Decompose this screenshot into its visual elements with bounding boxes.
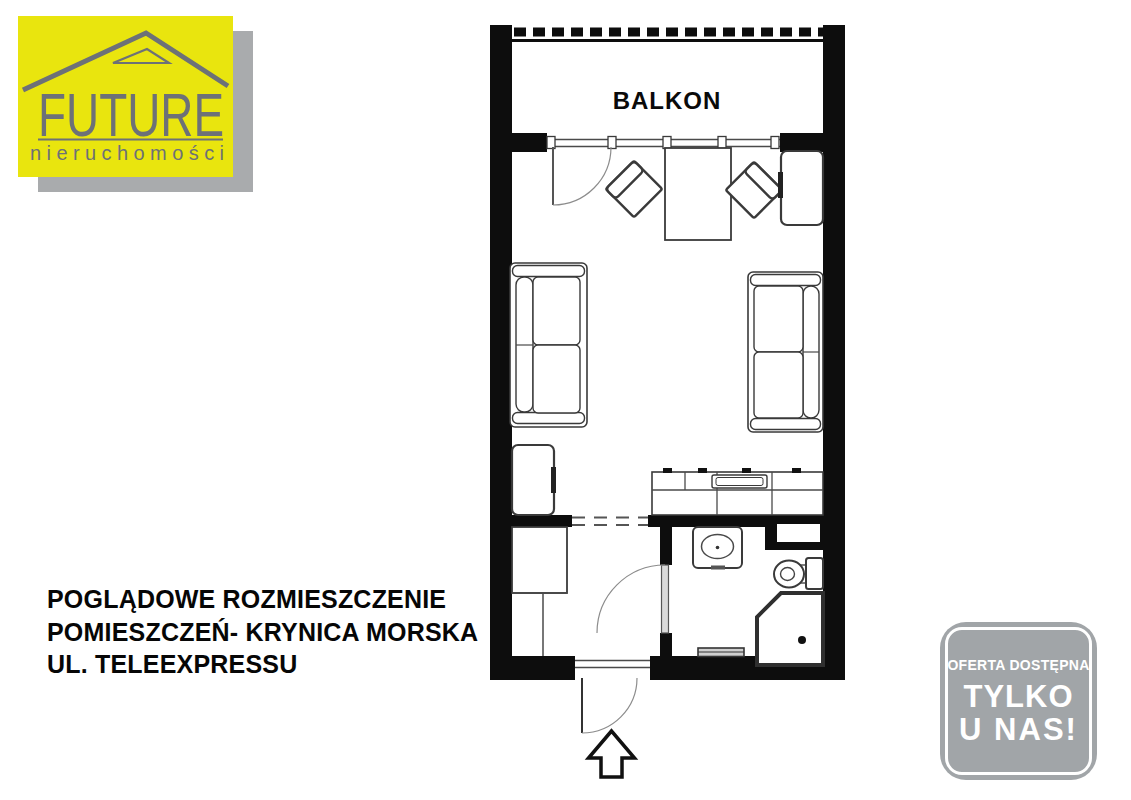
wardrobe [512, 527, 567, 656]
exclusive-offer-badge: OFERTA DOSTĘPNA TYLKO U NAS! [940, 622, 1097, 780]
sink [693, 527, 742, 570]
caption-line-3: UL. TELEEXPRESSU [47, 648, 507, 681]
plan-caption: POGLĄDOWE ROZMIESZCZENIE POMIESZCZEŃ- KR… [47, 583, 507, 681]
chair-left [606, 161, 663, 218]
logo-tagline: nieruchomości [30, 142, 224, 164]
badge-line-1: OFERTA DOSTĘPNA [947, 657, 1089, 673]
badge-inner-frame: OFERTA DOSTĘPNA TYLKO U NAS! [945, 627, 1092, 775]
caption-line-2: POMIESZCZEŃ- KRYNICA MORSKA [47, 616, 507, 649]
shower [757, 593, 823, 665]
floor-plan-diagram: BALKON [480, 10, 855, 785]
entry-door [575, 661, 650, 734]
hall-opening-dashed [572, 518, 648, 526]
real-estate-flyer: FUTURE nieruchomości BALKON [0, 0, 1131, 800]
armchair [512, 445, 556, 515]
badge-line-3: U NAS! [959, 713, 1078, 746]
logo-graphic: FUTURE nieruchomości [18, 16, 233, 177]
entrance-arrow-icon [589, 731, 635, 777]
radiator [698, 648, 744, 657]
dining-table [665, 148, 731, 240]
balcony-label: BALKON [613, 87, 722, 114]
window-wall [547, 137, 780, 149]
roof-window-icon [113, 49, 169, 63]
sofa-right [748, 272, 823, 432]
chair-right [726, 162, 783, 219]
sofa-left [510, 263, 587, 427]
balcony-railing [512, 32, 823, 41]
duct-shaft [777, 524, 820, 542]
cabinet [778, 151, 823, 225]
toilet [774, 558, 823, 589]
badge-line-2: TYLKO [963, 680, 1073, 713]
balcony-door [553, 147, 611, 205]
kitchen-counter [652, 468, 823, 515]
bathroom-door [597, 565, 669, 633]
caption-line-1: POGLĄDOWE ROZMIESZCZENIE [47, 583, 507, 616]
company-logo: FUTURE nieruchomości [18, 16, 233, 177]
